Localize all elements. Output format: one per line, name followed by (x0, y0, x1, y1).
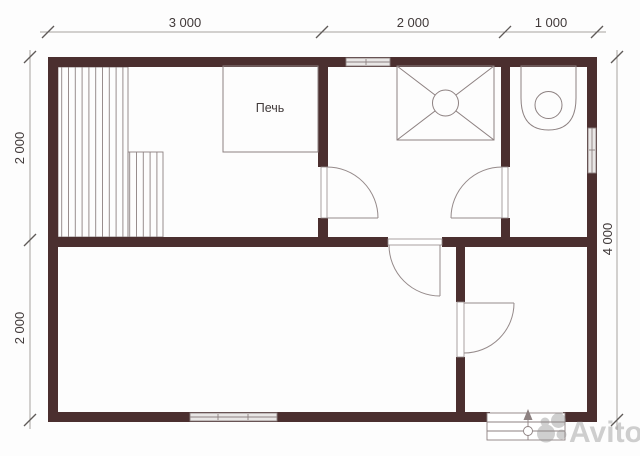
dim-label-top-3: 1 000 (535, 15, 568, 30)
entry-point-icon (524, 427, 533, 436)
floor-plan-svg: 3 000 2 000 1 000 2 000 2 000 4 000 (0, 0, 640, 456)
walls (48, 57, 597, 422)
wall-middle-left (58, 237, 388, 247)
wall-hall-upper (456, 247, 465, 302)
dim-label-top-1: 3 000 (169, 15, 202, 30)
wall-outer-right (587, 57, 597, 422)
toilet-bowl-icon (535, 92, 562, 119)
stove-label: Печь (256, 101, 285, 115)
floor-plan-image: 3 000 2 000 1 000 2 000 2 000 4 000 (0, 0, 640, 456)
dim-label-left-1: 2 000 (12, 132, 27, 165)
bench-tier-2 (128, 152, 163, 237)
window-bottom (190, 413, 277, 421)
wall-toilet-lower (501, 218, 510, 237)
bench-tier-1 (58, 67, 128, 237)
door-washroom (388, 239, 442, 296)
dim-label-left-2: 2 000 (12, 312, 27, 345)
dim-label-right-1: 4 000 (600, 223, 615, 256)
wall-middle-right (442, 237, 587, 247)
sauna-bench-area (58, 67, 163, 237)
watermark: Avito (537, 413, 640, 449)
wall-outer-left (48, 57, 58, 422)
dim-label-top-2: 2 000 (397, 15, 430, 30)
wall-outer-top (48, 57, 597, 67)
wall-toilet-upper (501, 67, 510, 167)
door-hall (457, 302, 514, 357)
wall-sauna-lower (318, 218, 328, 237)
shower-drain-icon (433, 90, 459, 116)
window-top (346, 58, 390, 66)
wall-sauna-upper (318, 67, 328, 167)
door-sauna (321, 167, 378, 218)
doors (321, 167, 514, 357)
window-right (588, 128, 596, 173)
watermark-brand-text: Avito (569, 416, 640, 449)
toilet-fixture (521, 66, 576, 130)
shower-tray (397, 66, 494, 140)
door-toilet (451, 167, 508, 218)
wall-hall-lower (456, 357, 465, 412)
